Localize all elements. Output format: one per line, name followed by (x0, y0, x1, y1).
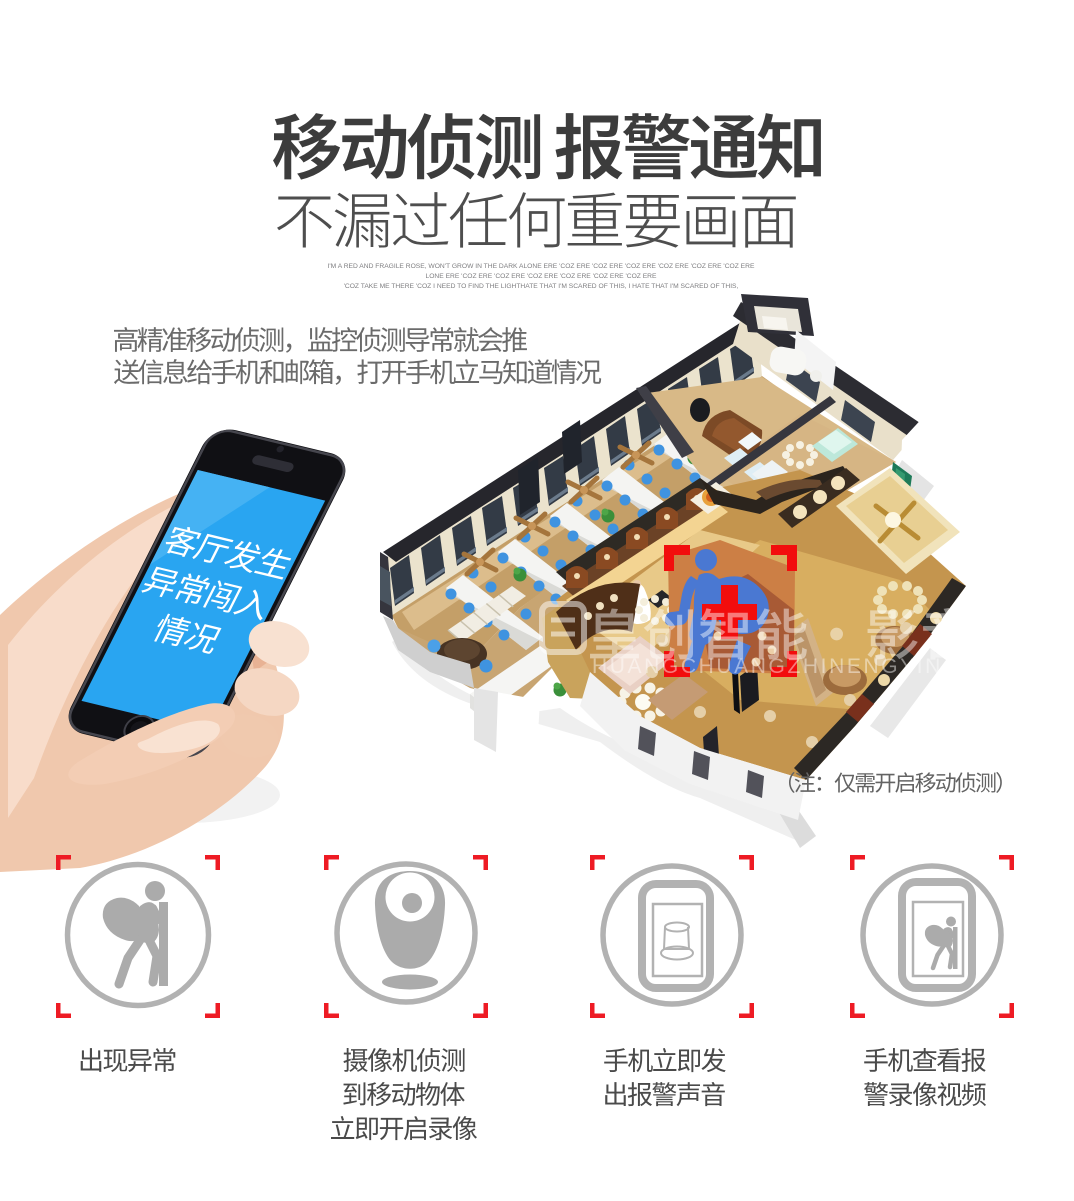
svg-text:'COZ TAKE ME THERE 'COZ I NEED: 'COZ TAKE ME THERE 'COZ I NEED TO FIND T… (344, 283, 739, 290)
svg-text:I'M A RED AND FRAGILE ROSE, WO: I'M A RED AND FRAGILE ROSE, WON'T GROW I… (328, 263, 755, 270)
svg-text:LONE ERE 'COZ ERE 'COZ ERE 'CO: LONE ERE 'COZ ERE 'COZ ERE 'COZ ERE 'COZ… (426, 273, 658, 280)
svg-text:HUANGCHUANGZHINENGYINGYIN: HUANGCHUANGZHINENGYINGYIN (592, 655, 1005, 678)
